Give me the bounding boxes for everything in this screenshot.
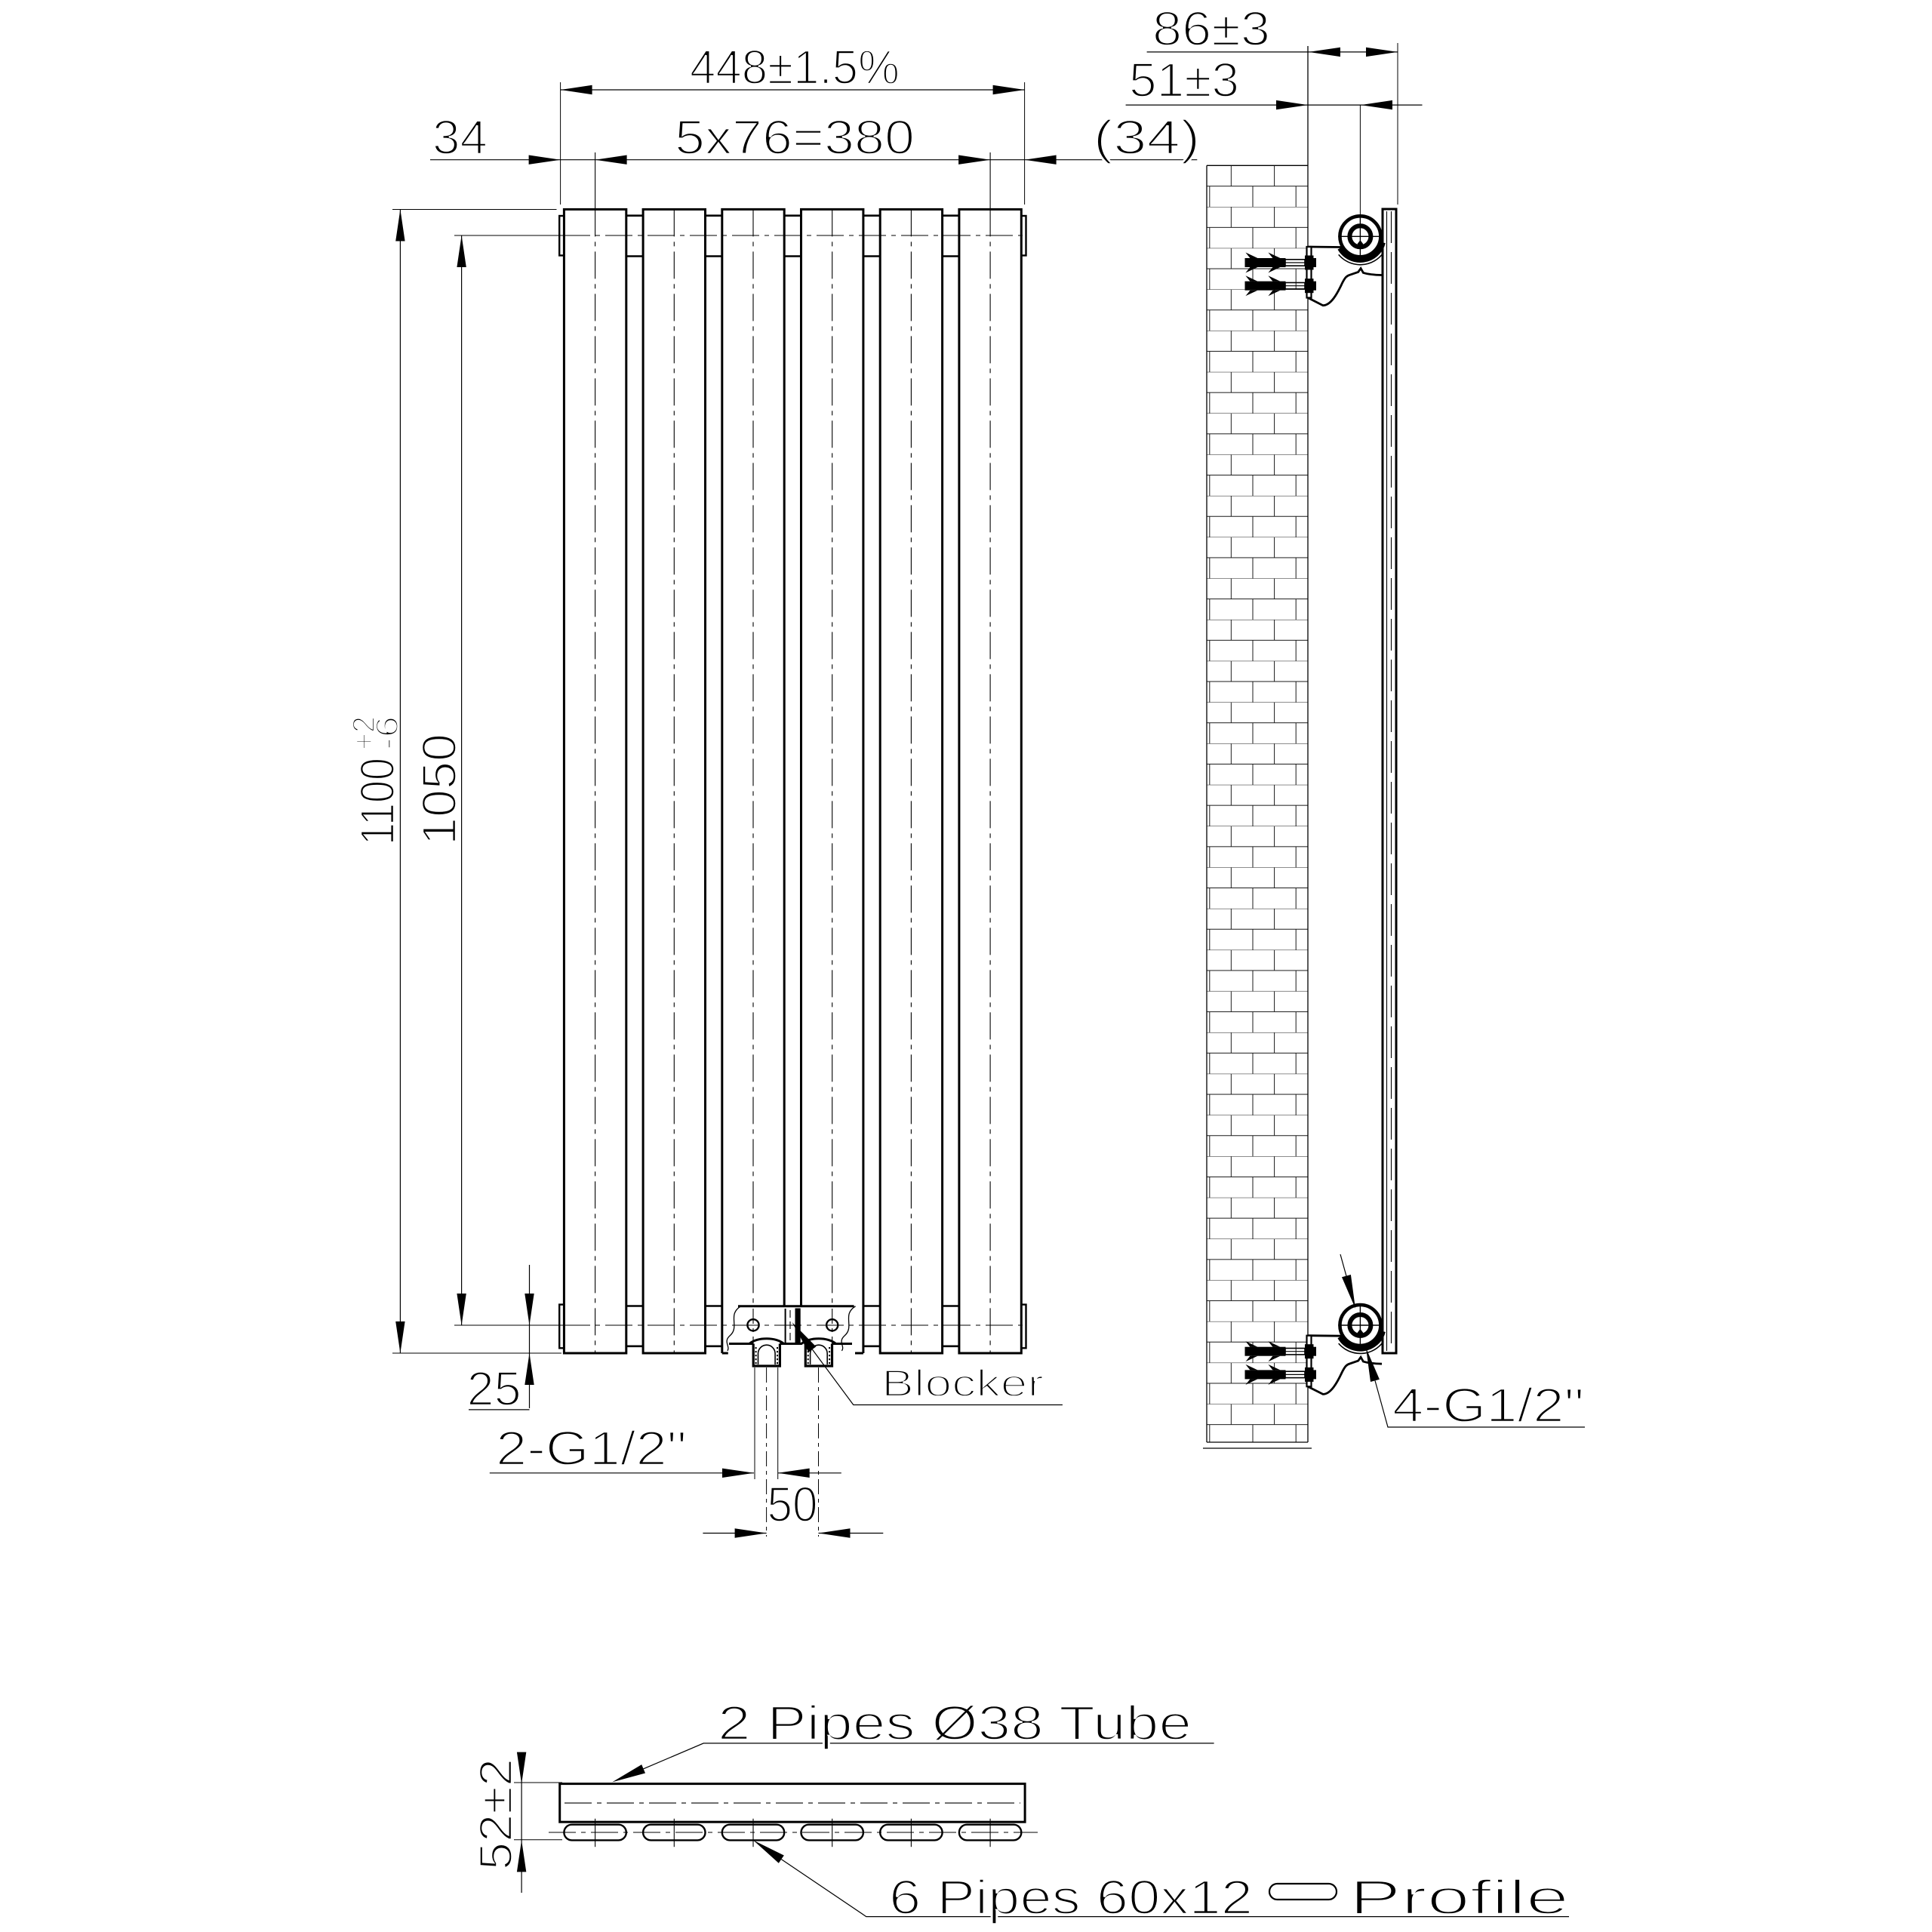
svg-text:-6: -6 [369, 716, 405, 750]
svg-text:1050: 1050 [412, 734, 466, 845]
svg-text:52±2: 52±2 [470, 1758, 521, 1870]
svg-text:Profile: Profile [1349, 1870, 1569, 1924]
svg-text:5x76=380: 5x76=380 [675, 110, 915, 165]
svg-text:(34): (34) [1094, 110, 1201, 165]
svg-text:Blocker: Blocker [881, 1362, 1044, 1404]
svg-text:25: 25 [467, 1361, 521, 1416]
svg-text:2 Pipes Ø38 Tube: 2 Pipes Ø38 Tube [718, 1696, 1192, 1750]
svg-text:2-G1/2": 2-G1/2" [496, 1421, 687, 1475]
svg-text:34: 34 [432, 110, 488, 165]
svg-text:448±1.5%: 448±1.5% [690, 40, 900, 94]
svg-text:4-G1/2": 4-G1/2" [1392, 1378, 1584, 1432]
svg-text:51±3: 51±3 [1129, 53, 1239, 107]
svg-text:50: 50 [768, 1476, 818, 1532]
svg-text:86±3: 86±3 [1152, 2, 1270, 56]
svg-text:6 Pipes 60x12: 6 Pipes 60x12 [889, 1870, 1253, 1924]
svg-text:1100: 1100 [350, 758, 405, 845]
